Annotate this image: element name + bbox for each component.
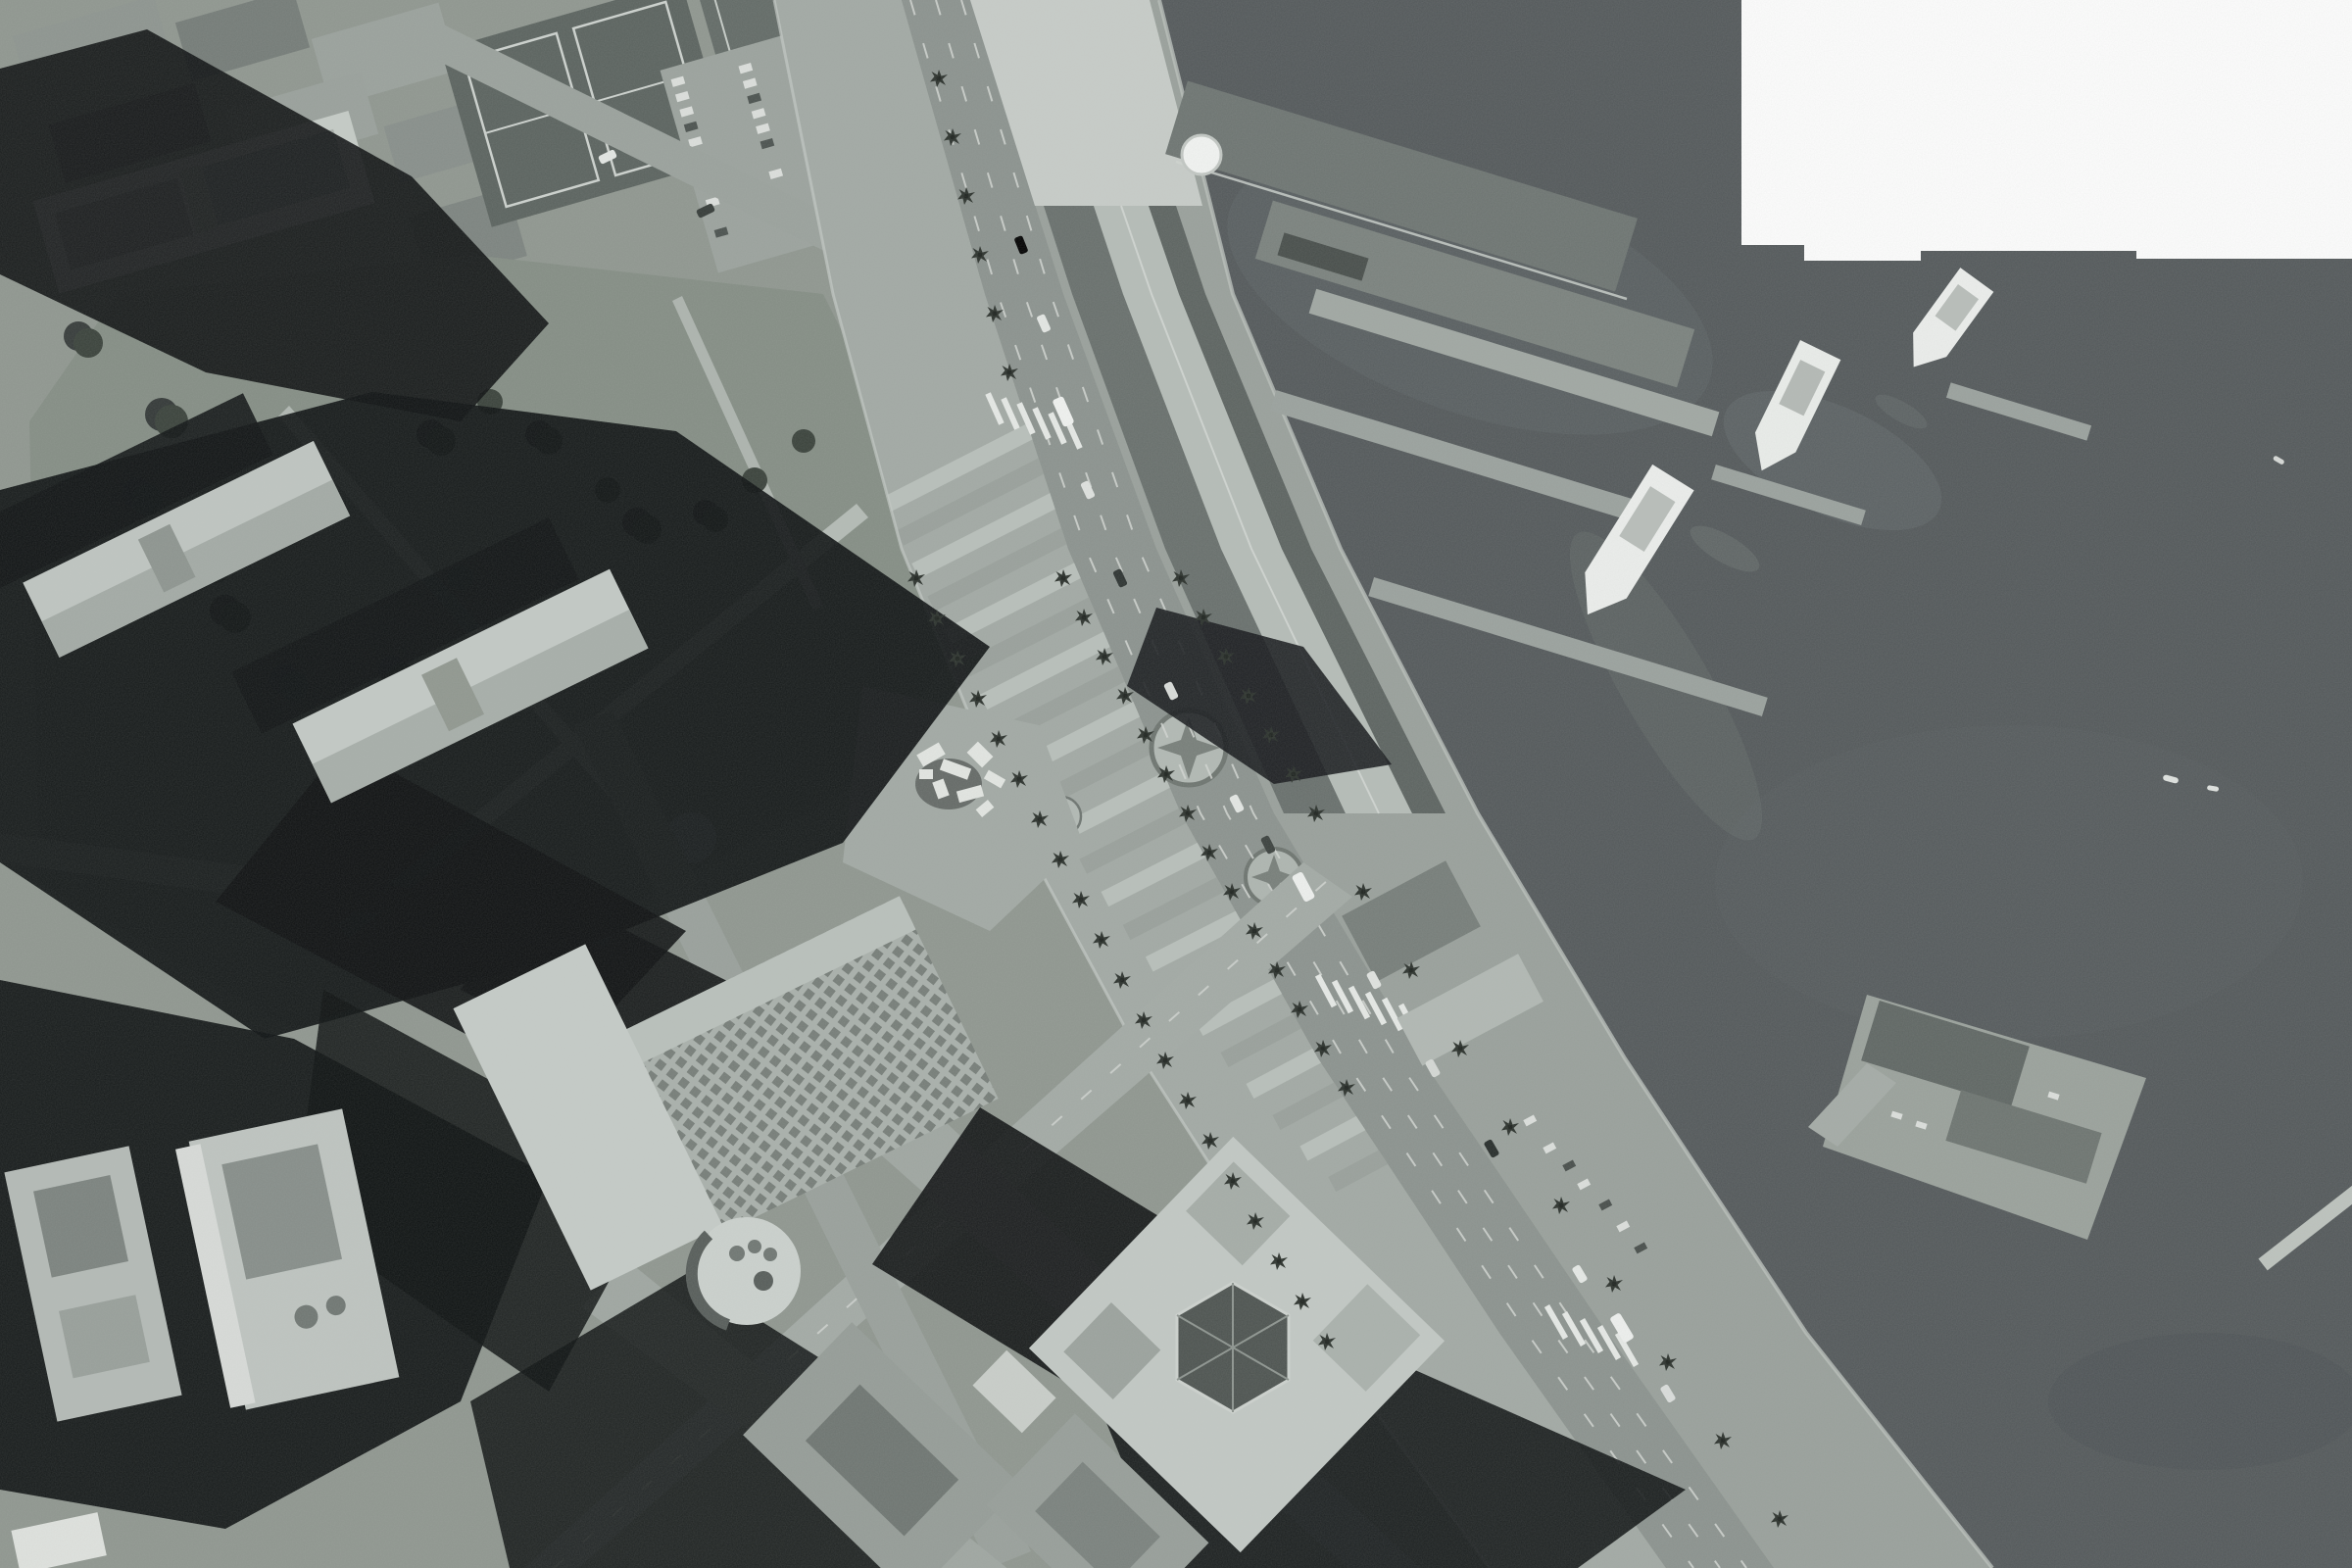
film-grain-overlay: [0, 0, 2352, 1568]
aerial-orthophoto: Grayscale aerial orthophoto — San Franci…: [0, 0, 2352, 1568]
aerial-photo-stage: Grayscale aerial orthophoto — San Franci…: [0, 0, 2352, 1568]
